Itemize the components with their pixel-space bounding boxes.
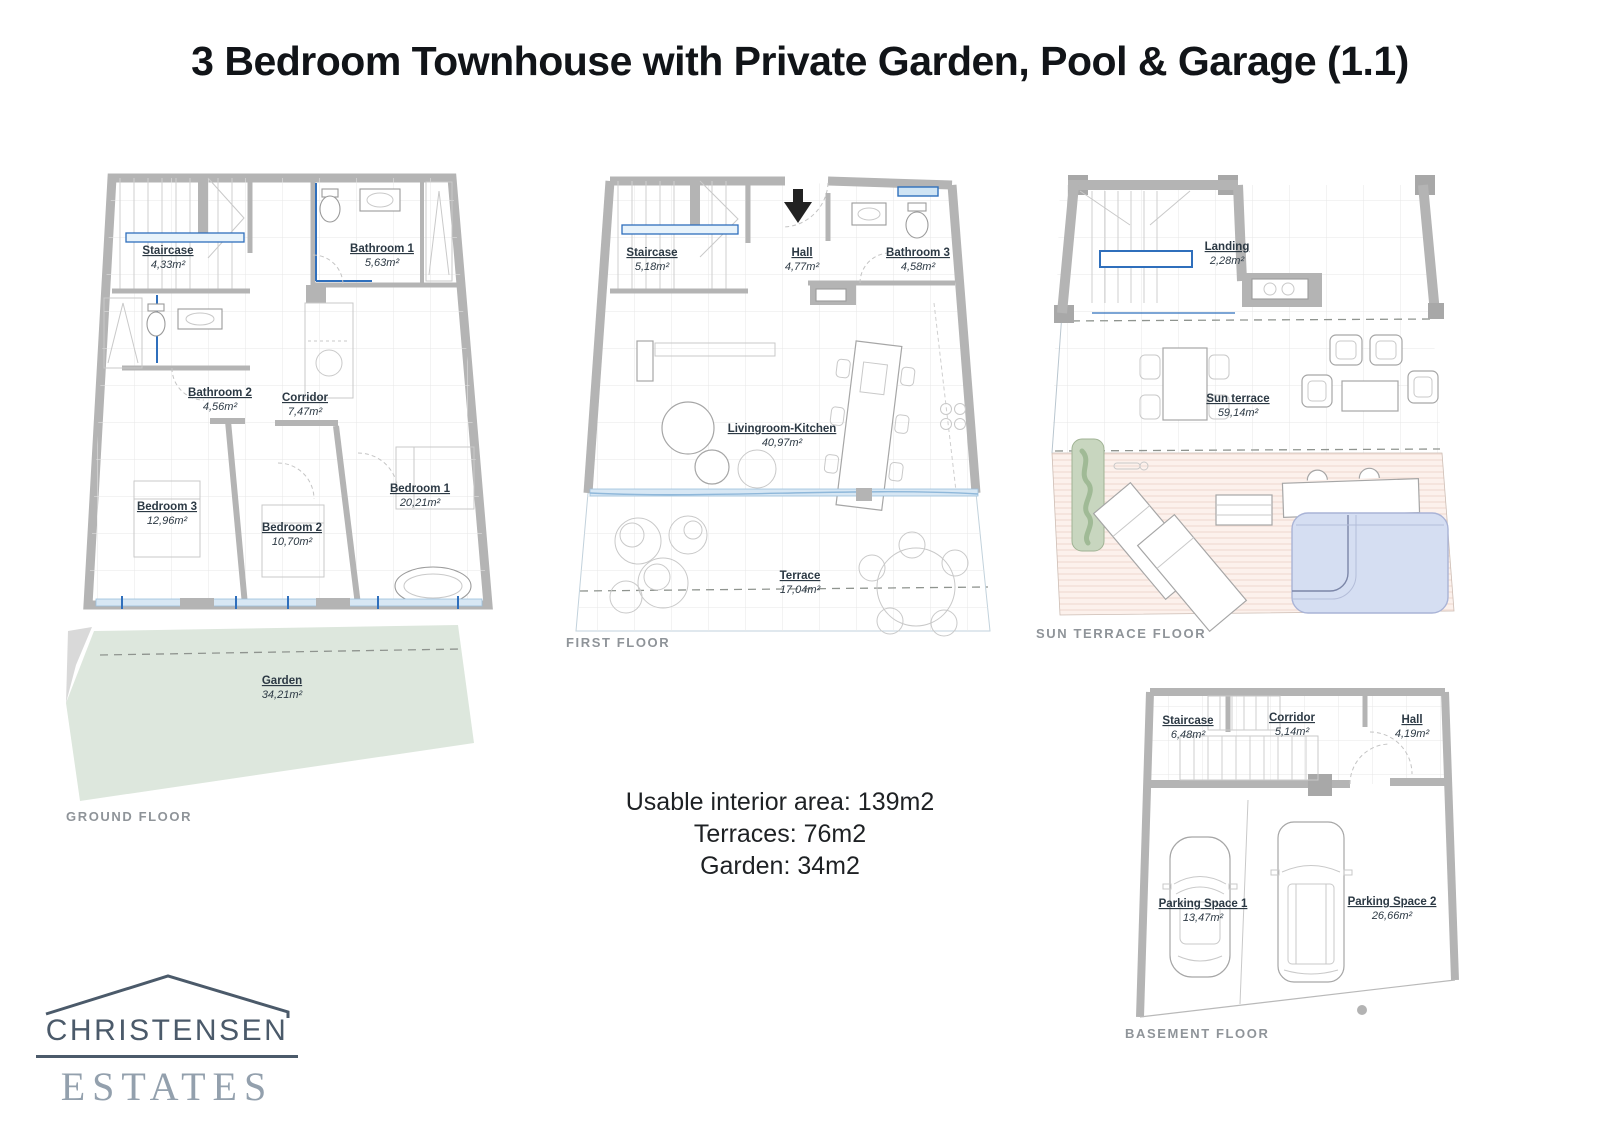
svg-text:40,97m²: 40,97m² (762, 437, 803, 449)
svg-text:12,96m²: 12,96m² (147, 515, 188, 527)
summary-interior: Usable interior area: 139m2 (560, 786, 1000, 818)
svg-text:6,48m²: 6,48m² (1171, 729, 1206, 741)
svg-text:20,21m²: 20,21m² (399, 497, 441, 509)
room-label: Bathroom 3 (886, 247, 950, 259)
svg-text:5,18m²: 5,18m² (635, 261, 670, 273)
area-summary: Usable interior area: 139m2 Terraces: 76… (560, 786, 1000, 882)
room-label: Staircase (142, 245, 193, 257)
summary-garden: Garden: 34m2 (560, 850, 1000, 882)
sun-terrace-drawing: Landing 2,28m² Sun terrace 59,14m² (1030, 163, 1475, 641)
floor-caption-first: FIRST FLOOR (566, 635, 670, 650)
svg-text:4,19m²: 4,19m² (1395, 728, 1430, 740)
sink-icon (360, 189, 400, 211)
sink-icon (178, 309, 222, 329)
room-label: Sun terrace (1206, 393, 1269, 405)
room-label: Staircase (626, 247, 677, 259)
svg-text:2,28m²: 2,28m² (1209, 255, 1245, 267)
toilet-icon (908, 203, 926, 211)
room-label: Bedroom 2 (262, 522, 322, 534)
room-label: Livingroom-Kitchen (728, 423, 837, 435)
svg-text:26,66m²: 26,66m² (1371, 910, 1413, 922)
sideboard-icon (637, 341, 653, 381)
brochure-page: 3 Bedroom Townhouse with Private Garden,… (0, 0, 1600, 1131)
round-table-icon (662, 402, 714, 454)
logo-name: CHRISTENSEN (36, 1014, 298, 1058)
floor-caption-ground: GROUND FLOOR (66, 809, 192, 824)
logo-type: ESTATES (36, 1063, 298, 1110)
svg-text:4,56m²: 4,56m² (203, 401, 238, 413)
svg-text:4,77m²: 4,77m² (785, 261, 820, 273)
first-floor-plan: Staircase 5,18m² Hall 4,77m² Bathroom 3 … (560, 163, 1000, 663)
svg-text:59,14m²: 59,14m² (1218, 407, 1259, 419)
svg-text:5,63m²: 5,63m² (365, 257, 400, 269)
planter-icon (1072, 439, 1104, 551)
first-floor-drawing: Staircase 5,18m² Hall 4,77m² Bathroom 3 … (560, 163, 1000, 655)
room-label: Bathroom 2 (188, 387, 252, 399)
window-icon (898, 187, 938, 196)
garden-area (66, 625, 474, 801)
room-label: Staircase (1162, 715, 1213, 727)
room-label: Hall (791, 247, 812, 259)
room-label: Landing (1205, 241, 1250, 253)
room-label: Bedroom 3 (137, 501, 197, 513)
logo-roof-icon (36, 970, 298, 1018)
stair-rail-icon (1100, 251, 1192, 267)
floor-caption-basement: BASEMENT FLOOR (1125, 1026, 1269, 1041)
room-label: Terrace (780, 570, 821, 582)
sun-terrace-floor-plan: Landing 2,28m² Sun terrace 59,14m² SUN T… (1030, 163, 1475, 645)
room-label: Hall (1401, 714, 1422, 726)
ground-floor-plan: Staircase 4,33m² Bathroom 1 5,63m² Bathr… (60, 163, 520, 835)
drain-dot (1357, 1005, 1367, 1015)
svg-text:13,47m²: 13,47m² (1183, 912, 1224, 924)
basement-drawing: Staircase 6,48m² Corridor 5,14m² Hall 4,… (1100, 672, 1460, 1044)
room-label: Corridor (1269, 712, 1316, 724)
summary-terraces: Terraces: 76m2 (560, 818, 1000, 850)
svg-text:10,70m²: 10,70m² (272, 536, 313, 548)
svg-text:17,04m²: 17,04m² (780, 584, 821, 596)
svg-text:7,47m²: 7,47m² (288, 406, 323, 418)
basement-floor-plan: Staircase 6,48m² Corridor 5,14m² Hall 4,… (1100, 672, 1460, 1044)
car-icon (1271, 822, 1352, 982)
room-label: Corridor (282, 392, 329, 404)
agency-logo: CHRISTENSEN ESTATES (36, 970, 298, 1110)
terrace-area (576, 493, 990, 636)
room-label: Bedroom 1 (390, 483, 451, 495)
svg-text:5,14m²: 5,14m² (1275, 726, 1310, 738)
pool-shape (1292, 513, 1448, 613)
floor-caption-sun-terrace: SUN TERRACE FLOOR (1036, 626, 1206, 641)
room-label: Parking Space 2 (1348, 896, 1437, 908)
page-title: 3 Bedroom Townhouse with Private Garden,… (0, 38, 1600, 85)
svg-text:34,21m²: 34,21m² (262, 689, 303, 701)
room-label: Garden (262, 675, 302, 687)
room-label: Parking Space 1 (1159, 898, 1248, 910)
toilet-icon (148, 304, 164, 311)
ground-floor-drawing: Staircase 4,33m² Bathroom 1 5,63m² Bathr… (60, 163, 520, 813)
room-label: Bathroom 1 (350, 243, 415, 255)
shelf-icon (1216, 495, 1272, 525)
sink-icon (852, 203, 886, 225)
svg-text:4,58m²: 4,58m² (901, 261, 936, 273)
svg-text:4,33m²: 4,33m² (151, 259, 186, 271)
